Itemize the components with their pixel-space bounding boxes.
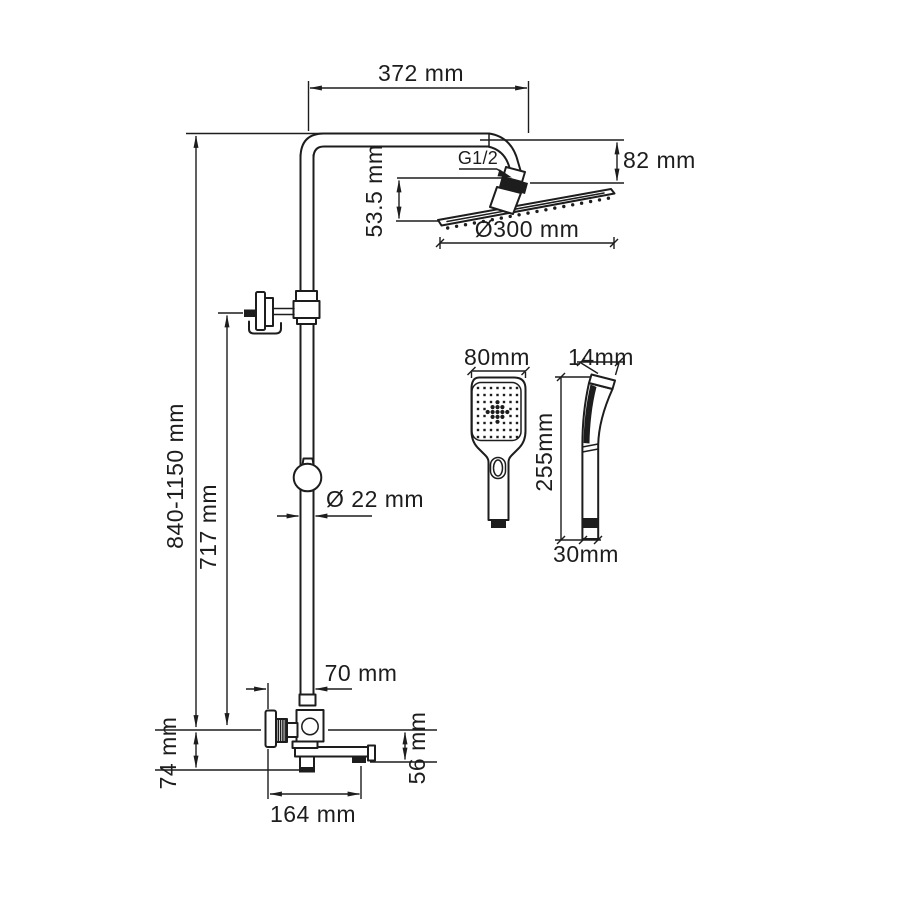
dimension-labels: 372 mm 82 mm G1/2 53.5 mm Ø300 mm 840-11… [155, 60, 696, 827]
dim-label-thread-size: G1/2 [458, 148, 498, 168]
dim-label-spout-length: 164 mm [270, 801, 356, 827]
dim-label-hand-shower-length: 255mm [531, 412, 557, 491]
dim-label-head-drop: 82 mm [623, 147, 696, 173]
dim-label-bracket-height: 717 mm [195, 484, 221, 570]
technical-drawing-page: 372 mm 82 mm G1/2 53.5 mm Ø300 mm 840-11… [0, 0, 900, 900]
dim-label-hand-shower-handle: 30mm [553, 541, 619, 567]
bath-mixer [266, 695, 376, 773]
hand-shower-inlet-tip [491, 520, 506, 528]
dim-label-head-diameter: Ø300 mm [475, 216, 579, 242]
mixer-handle-disc [266, 711, 277, 748]
mixer-body [297, 710, 324, 742]
dim-label-column-height: 840-1150 mm [162, 403, 188, 549]
dim-label-hand-shower-width: 80mm [464, 344, 530, 370]
dim-label-hand-shower-depth: 14mm [568, 344, 634, 370]
dim-label-pipe-diameter: Ø 22 mm [326, 486, 424, 512]
dim-label-wall-offset: 74 mm [155, 717, 181, 790]
spout-aerator [352, 757, 366, 764]
hand-shower-inlet-tip-side [582, 518, 598, 528]
dim-label-head-offset: 53.5 mm [361, 145, 387, 238]
hand-shower-front-view [472, 378, 526, 529]
dim-label-handle-offset: 70 mm [325, 660, 398, 686]
dim-label-spout-drop: 56 mm [404, 712, 430, 785]
dim-label-arm-reach: 372 mm [378, 60, 464, 86]
hand-shower-side-view [582, 375, 615, 540]
shower-system-technical-drawing: 372 mm 82 mm G1/2 53.5 mm Ø300 mm 840-11… [0, 0, 900, 900]
slider-knob [294, 459, 322, 492]
